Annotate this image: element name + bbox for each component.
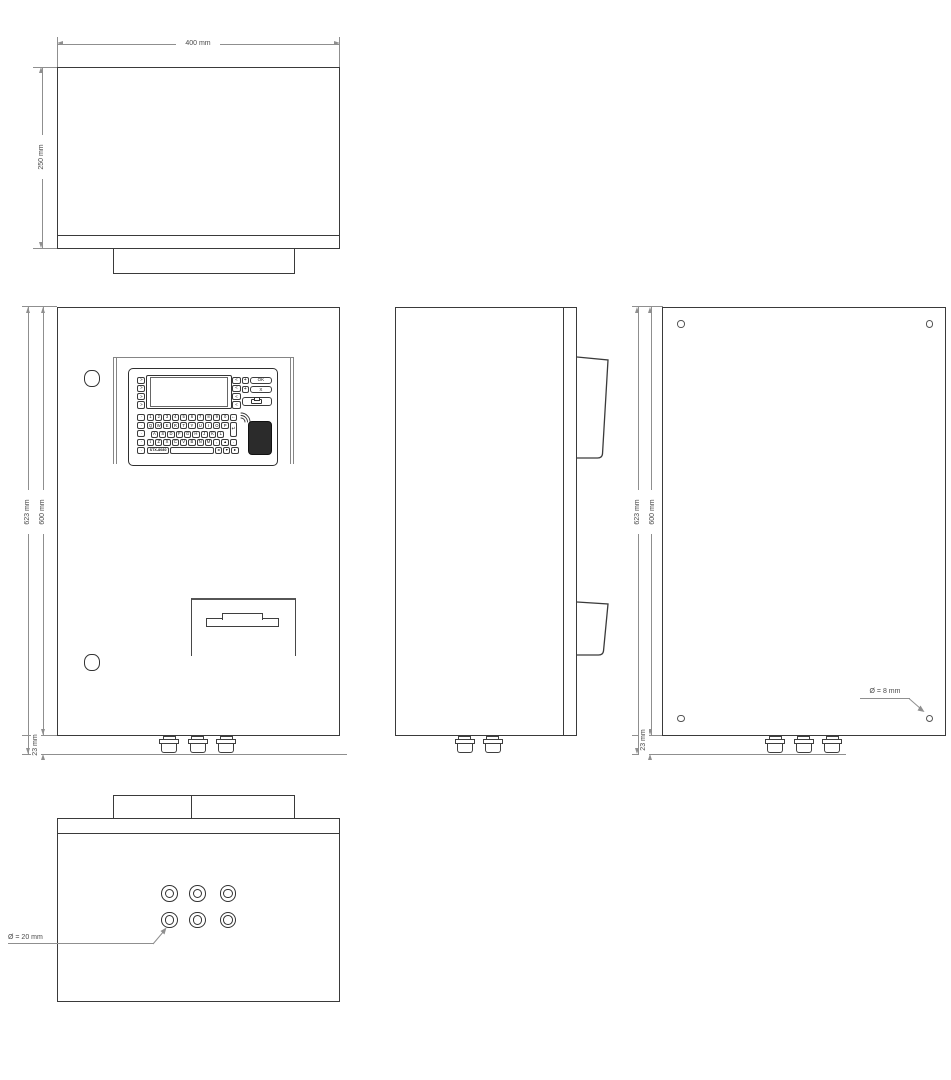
- paper-slot-step: [222, 613, 263, 620]
- enter-key: ↵: [230, 422, 238, 437]
- keyboard-key: T: [180, 422, 187, 429]
- keyboard-key: K: [209, 431, 216, 438]
- function-key: ·: [137, 414, 145, 421]
- cable-gland: [822, 736, 843, 753]
- arrow-right-key: ►: [231, 447, 238, 454]
- function-key: ·: [137, 447, 145, 454]
- gland-diameter-annotation: Ø = 20 mm: [8, 933, 54, 943]
- keyboard-key: 6: [188, 414, 195, 421]
- gland-hole: [161, 885, 178, 902]
- screen-softkey: <: [232, 393, 240, 400]
- mounting-hole: [677, 320, 684, 327]
- keyboard-key: 9: [213, 414, 220, 421]
- cable-gland: [482, 736, 503, 753]
- extension-line: [33, 67, 57, 68]
- back-height-total-label: 623 mm: [633, 490, 643, 534]
- keyboard-key: J: [201, 431, 208, 438]
- screen-softkey: >: [137, 377, 145, 384]
- leader-arrow: [906, 697, 930, 717]
- function-key: ·: [137, 422, 145, 429]
- keyboard-key: L: [217, 431, 224, 438]
- door-hinge-tab: [577, 597, 613, 659]
- door-inset-line: [113, 357, 114, 464]
- plus-key: +: [242, 377, 249, 384]
- keyboard-key: W: [155, 422, 162, 429]
- bottom-view-body: [57, 818, 340, 1002]
- keyboard-key: 7: [197, 414, 204, 421]
- back-view-body: [662, 307, 946, 736]
- function-key: ·: [137, 430, 145, 437]
- door-inset-line: [113, 357, 293, 358]
- side-door-edge-line: [563, 308, 564, 735]
- keyboard-key: 3: [163, 414, 170, 421]
- keyboard-key: C: [172, 439, 179, 446]
- gland-hole: [220, 885, 237, 902]
- lock-button: [84, 654, 100, 671]
- keyboard-key: D: [167, 431, 174, 438]
- keyboard-key: 5: [180, 414, 187, 421]
- keyboard-key: O: [213, 422, 220, 429]
- top-view-mount-tab: [113, 249, 295, 274]
- keyboard-key: H: [192, 431, 199, 438]
- ok-key: OK: [250, 377, 271, 384]
- arrow-down-key: ▼: [223, 447, 230, 454]
- cable-gland: [793, 736, 814, 753]
- keyboard-key: Y: [188, 422, 195, 429]
- back-glands-height-label: 23 mm: [639, 723, 649, 757]
- keyboard-key: F: [176, 431, 183, 438]
- keyboard-key: I: [205, 422, 212, 429]
- keyboard-key: .: [230, 439, 237, 446]
- keyboard-key: M: [205, 439, 212, 446]
- keyboard-key: 0: [221, 414, 228, 421]
- keyboard-key: ,: [213, 439, 220, 446]
- rfid-pad: [248, 421, 271, 455]
- bottom-view-mount-tab: [113, 795, 295, 819]
- dimension-arrow: [635, 307, 639, 313]
- arrow-up-key: ▲: [221, 439, 228, 446]
- cable-gland: [454, 736, 475, 753]
- plus-key: +: [242, 386, 249, 393]
- keyboard-key: 4: [172, 414, 179, 421]
- shift-key: ⇧: [147, 439, 154, 446]
- dimension-arrow: [26, 748, 30, 754]
- home-row: A S D F G H J K L: [151, 431, 225, 438]
- gland-hole: [189, 885, 206, 902]
- screen-softkey: <: [232, 401, 240, 408]
- function-key: ·: [137, 439, 145, 446]
- space-row: STX-8080 ◄ ▼ ►: [147, 447, 239, 454]
- bottom-letter-row: ⇧ Z X C V B N M , ▲ .: [147, 439, 237, 446]
- keyboard-key: 1: [147, 414, 154, 421]
- extension-line: [632, 754, 846, 755]
- dimension-arrow: [334, 41, 340, 45]
- dimension-arrow: [39, 67, 43, 73]
- dimension-arrow: [648, 307, 652, 313]
- front-height-body-label: 600 mm: [38, 490, 48, 534]
- dimension-arrow: [41, 307, 45, 313]
- cancel-row: + X: [242, 386, 272, 393]
- screen-right-keys: < < < <: [232, 377, 240, 409]
- keyboard-key: U: [197, 422, 204, 429]
- keyboard-key: V: [180, 439, 187, 446]
- keyboard-key: 2: [155, 414, 162, 421]
- dimension-arrow: [41, 729, 45, 735]
- leader-line: [860, 698, 910, 699]
- cable-gland: [765, 736, 786, 753]
- keyboard-key: S: [159, 431, 166, 438]
- keyboard-key: 8: [205, 414, 212, 421]
- screen-softkey: <: [232, 385, 240, 392]
- keyboard-key: E: [163, 422, 170, 429]
- door-hinge-tab: [577, 354, 613, 462]
- qwerty-row: Q W E R T Y U I O P: [147, 422, 229, 429]
- mount-tab-divider: [191, 795, 192, 818]
- width-dimension-label: 400 mm: [176, 39, 220, 49]
- hole-diameter-annotation: Ø = 8 mm: [862, 687, 908, 697]
- cancel-key: X: [250, 386, 271, 393]
- extension-line: [33, 248, 57, 249]
- screen-softkey: >: [137, 393, 145, 400]
- keyboard-key: X: [163, 439, 170, 446]
- printer-icon: [251, 399, 262, 405]
- arrow-left-key: ◄: [215, 447, 222, 454]
- top-view-body: [57, 67, 340, 249]
- dimension-arrow: [39, 242, 43, 248]
- leader-arrow: [152, 923, 174, 947]
- keyboard-key: B: [188, 439, 195, 446]
- extension-line: [22, 754, 347, 755]
- front-height-total-label: 623 mm: [23, 490, 33, 534]
- leader-line: [8, 943, 154, 944]
- cable-gland: [159, 736, 180, 753]
- dimension-arrow: [26, 307, 30, 313]
- keyboard-key: Z: [155, 439, 162, 446]
- cable-gland: [216, 736, 237, 753]
- keyboard-key: A: [151, 431, 158, 438]
- model-label-key: STX-8080: [147, 447, 170, 454]
- lock-button: [84, 370, 100, 387]
- technical-drawing-canvas: 400 mm 250 mm 623 mm 600 mm 23 mm: [0, 0, 951, 1080]
- keyboard-key: P: [221, 422, 228, 429]
- side-view-body: [395, 307, 577, 736]
- number-row: 1 2 3 4 5 6 7 8 9 0 ←: [147, 414, 237, 421]
- keyboard-key: Q: [147, 422, 154, 429]
- keyboard-key: N: [197, 439, 204, 446]
- ok-row: + OK: [242, 377, 272, 384]
- screen-softkey: >: [137, 401, 145, 408]
- door-inset-line: [116, 357, 117, 464]
- gland-hole: [189, 912, 206, 929]
- space-key: [170, 447, 213, 454]
- keyboard-key: R: [172, 422, 179, 429]
- printer-key: [242, 397, 272, 406]
- back-height-body-label: 600 mm: [648, 490, 658, 534]
- front-glands-height-label: 23 mm: [31, 728, 41, 762]
- dimension-arrow: [41, 754, 45, 760]
- top-view-front-edge: [58, 235, 339, 236]
- backspace-key: ←: [230, 414, 237, 421]
- screen-softkey: <: [232, 377, 240, 384]
- keyboard-key: G: [184, 431, 191, 438]
- dimension-arrow: [57, 41, 63, 45]
- depth-dimension-label: 250 mm: [37, 135, 47, 179]
- cable-gland: [187, 736, 208, 753]
- display-screen-inner: [150, 377, 229, 407]
- screen-softkey: >: [137, 385, 145, 392]
- door-inset-line: [293, 357, 294, 464]
- screen-left-keys: > > > >: [137, 377, 145, 409]
- door-inset-line: [290, 357, 291, 464]
- function-key-column: · · · · ·: [137, 414, 145, 454]
- bottom-view-front-edge: [58, 833, 339, 834]
